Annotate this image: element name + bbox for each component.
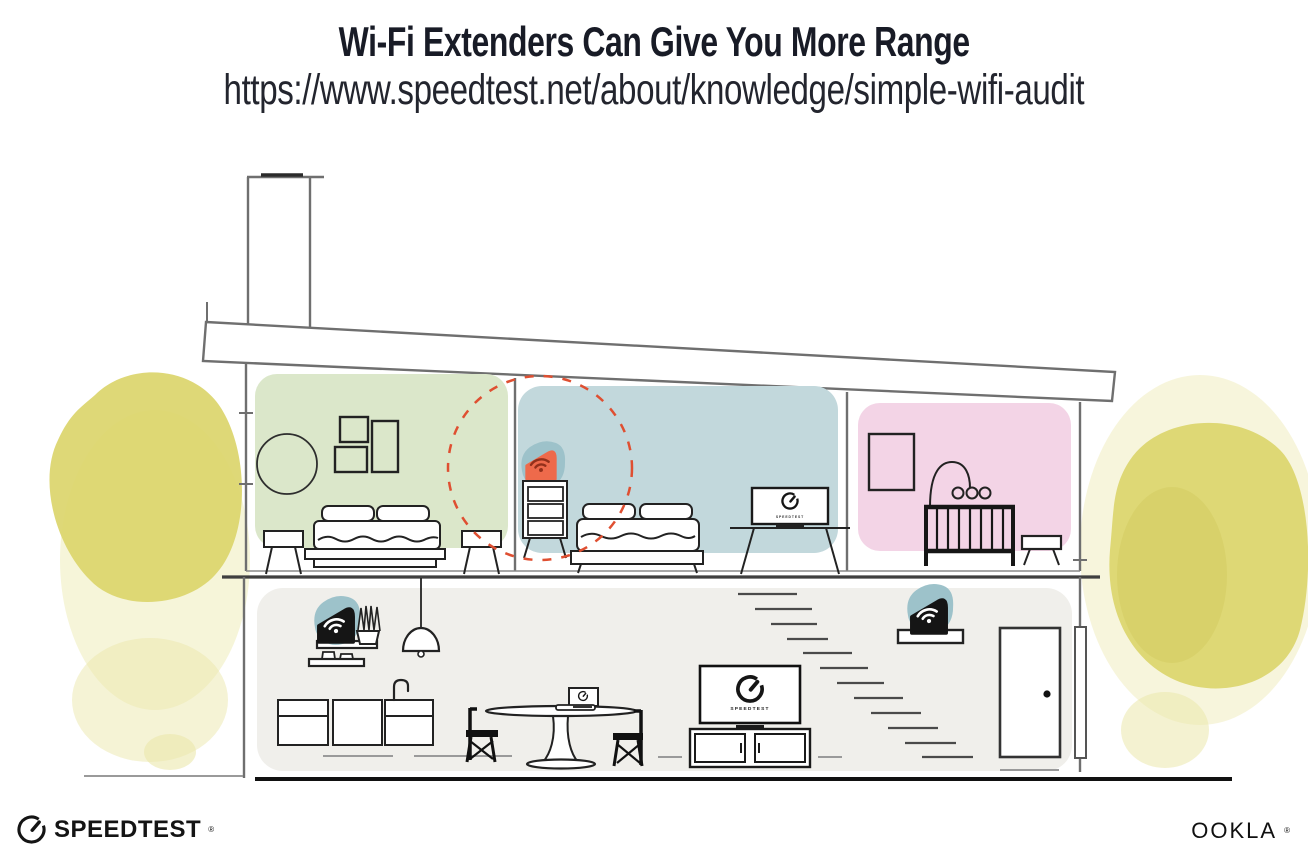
nursery — [858, 403, 1071, 566]
nursery-wall — [858, 403, 1071, 551]
registered-mark: ® — [208, 825, 214, 835]
foliage-left-spot — [144, 734, 196, 770]
foliage-right — [1080, 375, 1308, 768]
living-room: SPEEDTEST — [257, 578, 1086, 771]
nightstand-right — [462, 531, 501, 574]
tv-console — [690, 729, 810, 767]
house-illustration: SPEEDTEST — [0, 0, 1308, 861]
tv-living-label: SPEEDTEST — [730, 706, 769, 712]
bedroom-green — [255, 374, 508, 574]
foliage-left — [49, 372, 250, 770]
ookla-wordmark: OOKLA — [1191, 818, 1277, 844]
registered-mark: ® — [1284, 826, 1290, 836]
speedtest-logo: SPEEDTEST® — [16, 814, 214, 845]
speedtest-wordmark: SPEEDTEST — [54, 816, 201, 844]
tv-base — [776, 524, 804, 527]
door-sidelight-window — [1075, 627, 1086, 758]
nightstand-left — [264, 531, 303, 574]
ookla-logo: OOKLA® — [1191, 818, 1290, 844]
chimney — [247, 175, 324, 329]
tv-bedroom-label: SPEEDTEST — [776, 515, 804, 519]
tv-living-room: SPEEDTEST — [700, 666, 800, 729]
bedroom-blue: SPEEDTEST — [518, 386, 850, 574]
front-door — [1000, 628, 1060, 757]
foliage-right-shade — [1117, 487, 1227, 663]
door-knob — [1043, 690, 1050, 697]
speedtest-gauge-icon — [16, 814, 47, 845]
tv-living-screen — [700, 666, 800, 723]
foliage-right-spot — [1121, 692, 1209, 768]
